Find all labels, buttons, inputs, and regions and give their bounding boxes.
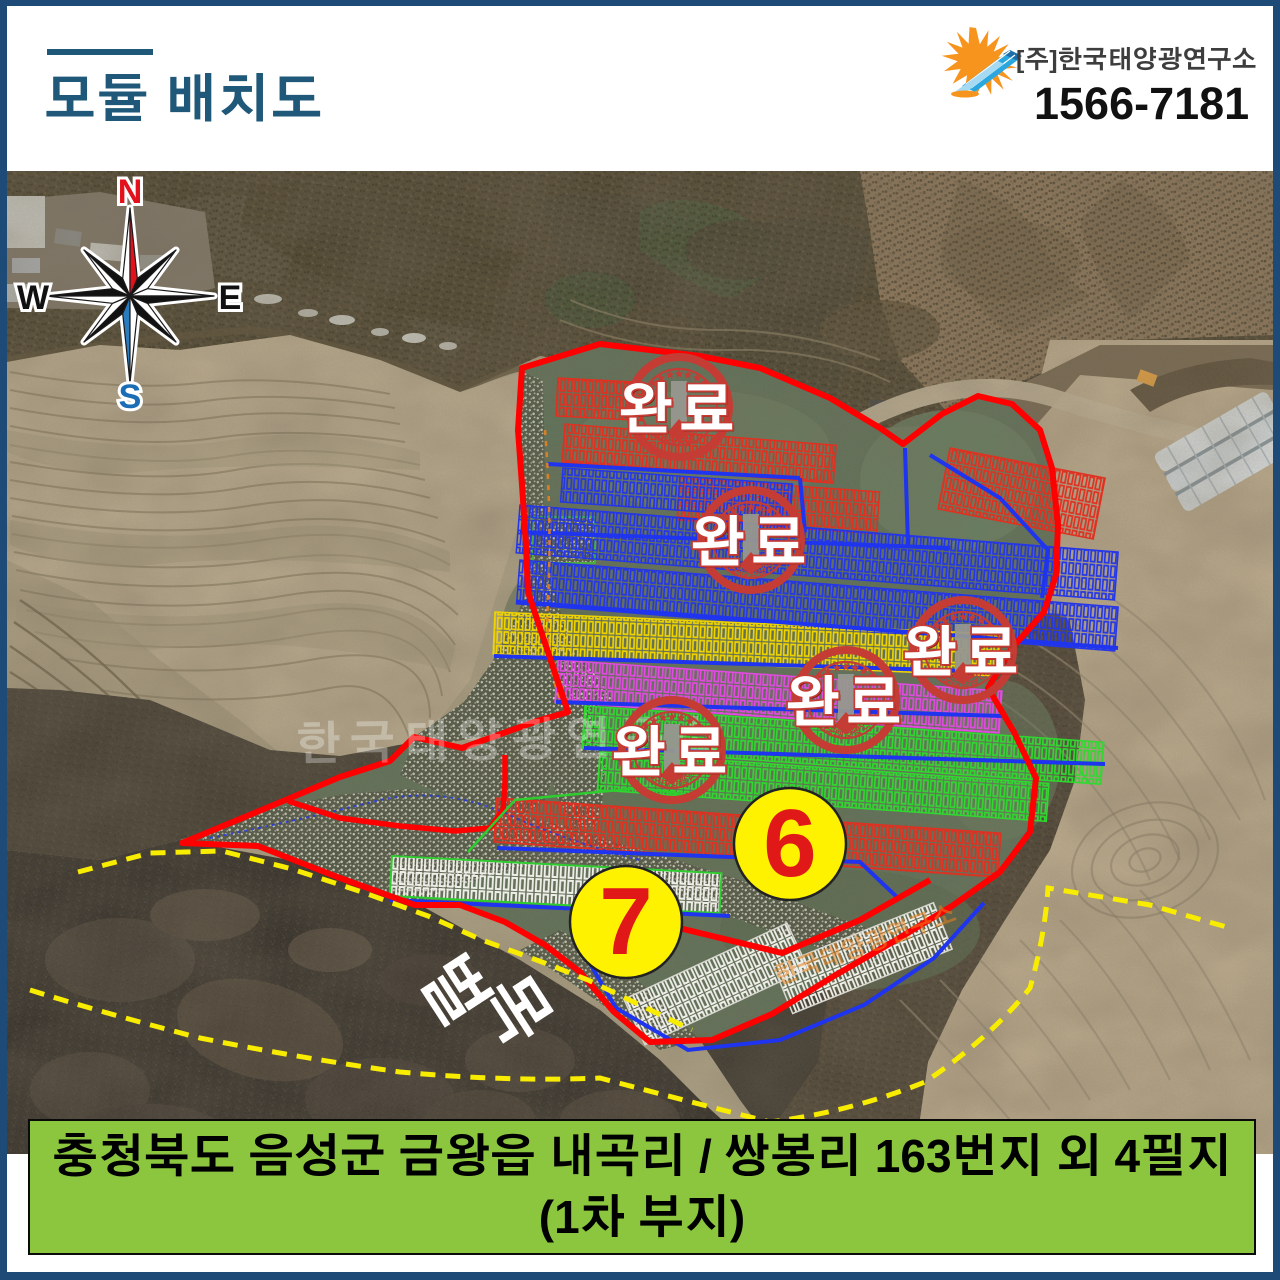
svg-text:E: E [219,279,242,317]
svg-text:7: 7 [599,868,652,975]
svg-text:W: W [17,279,50,317]
svg-text:6: 6 [763,790,816,897]
svg-text:[주]한국태양광연구소: [주]한국태양광연구소 [1016,46,1257,74]
svg-text:S: S [119,378,142,416]
svg-text:1566-7181: 1566-7181 [1034,78,1249,129]
svg-text:N: N [118,173,143,211]
